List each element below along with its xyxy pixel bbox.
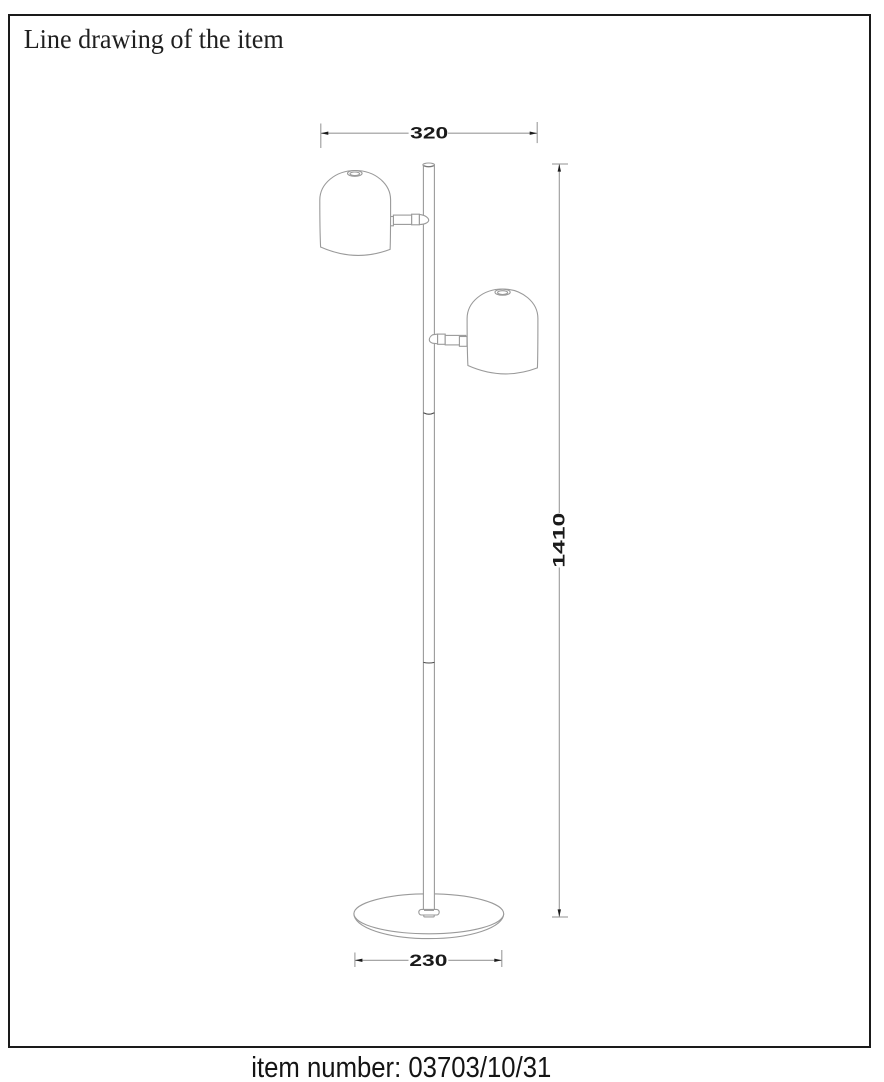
- svg-text:1410: 1410: [550, 513, 568, 568]
- svg-text:Line drawing of the item: Line drawing of the item: [24, 24, 284, 54]
- svg-text:230: 230: [409, 952, 447, 970]
- svg-text:item number: 03703/10/31: item number: 03703/10/31: [251, 1052, 551, 1082]
- svg-text:320: 320: [410, 125, 448, 143]
